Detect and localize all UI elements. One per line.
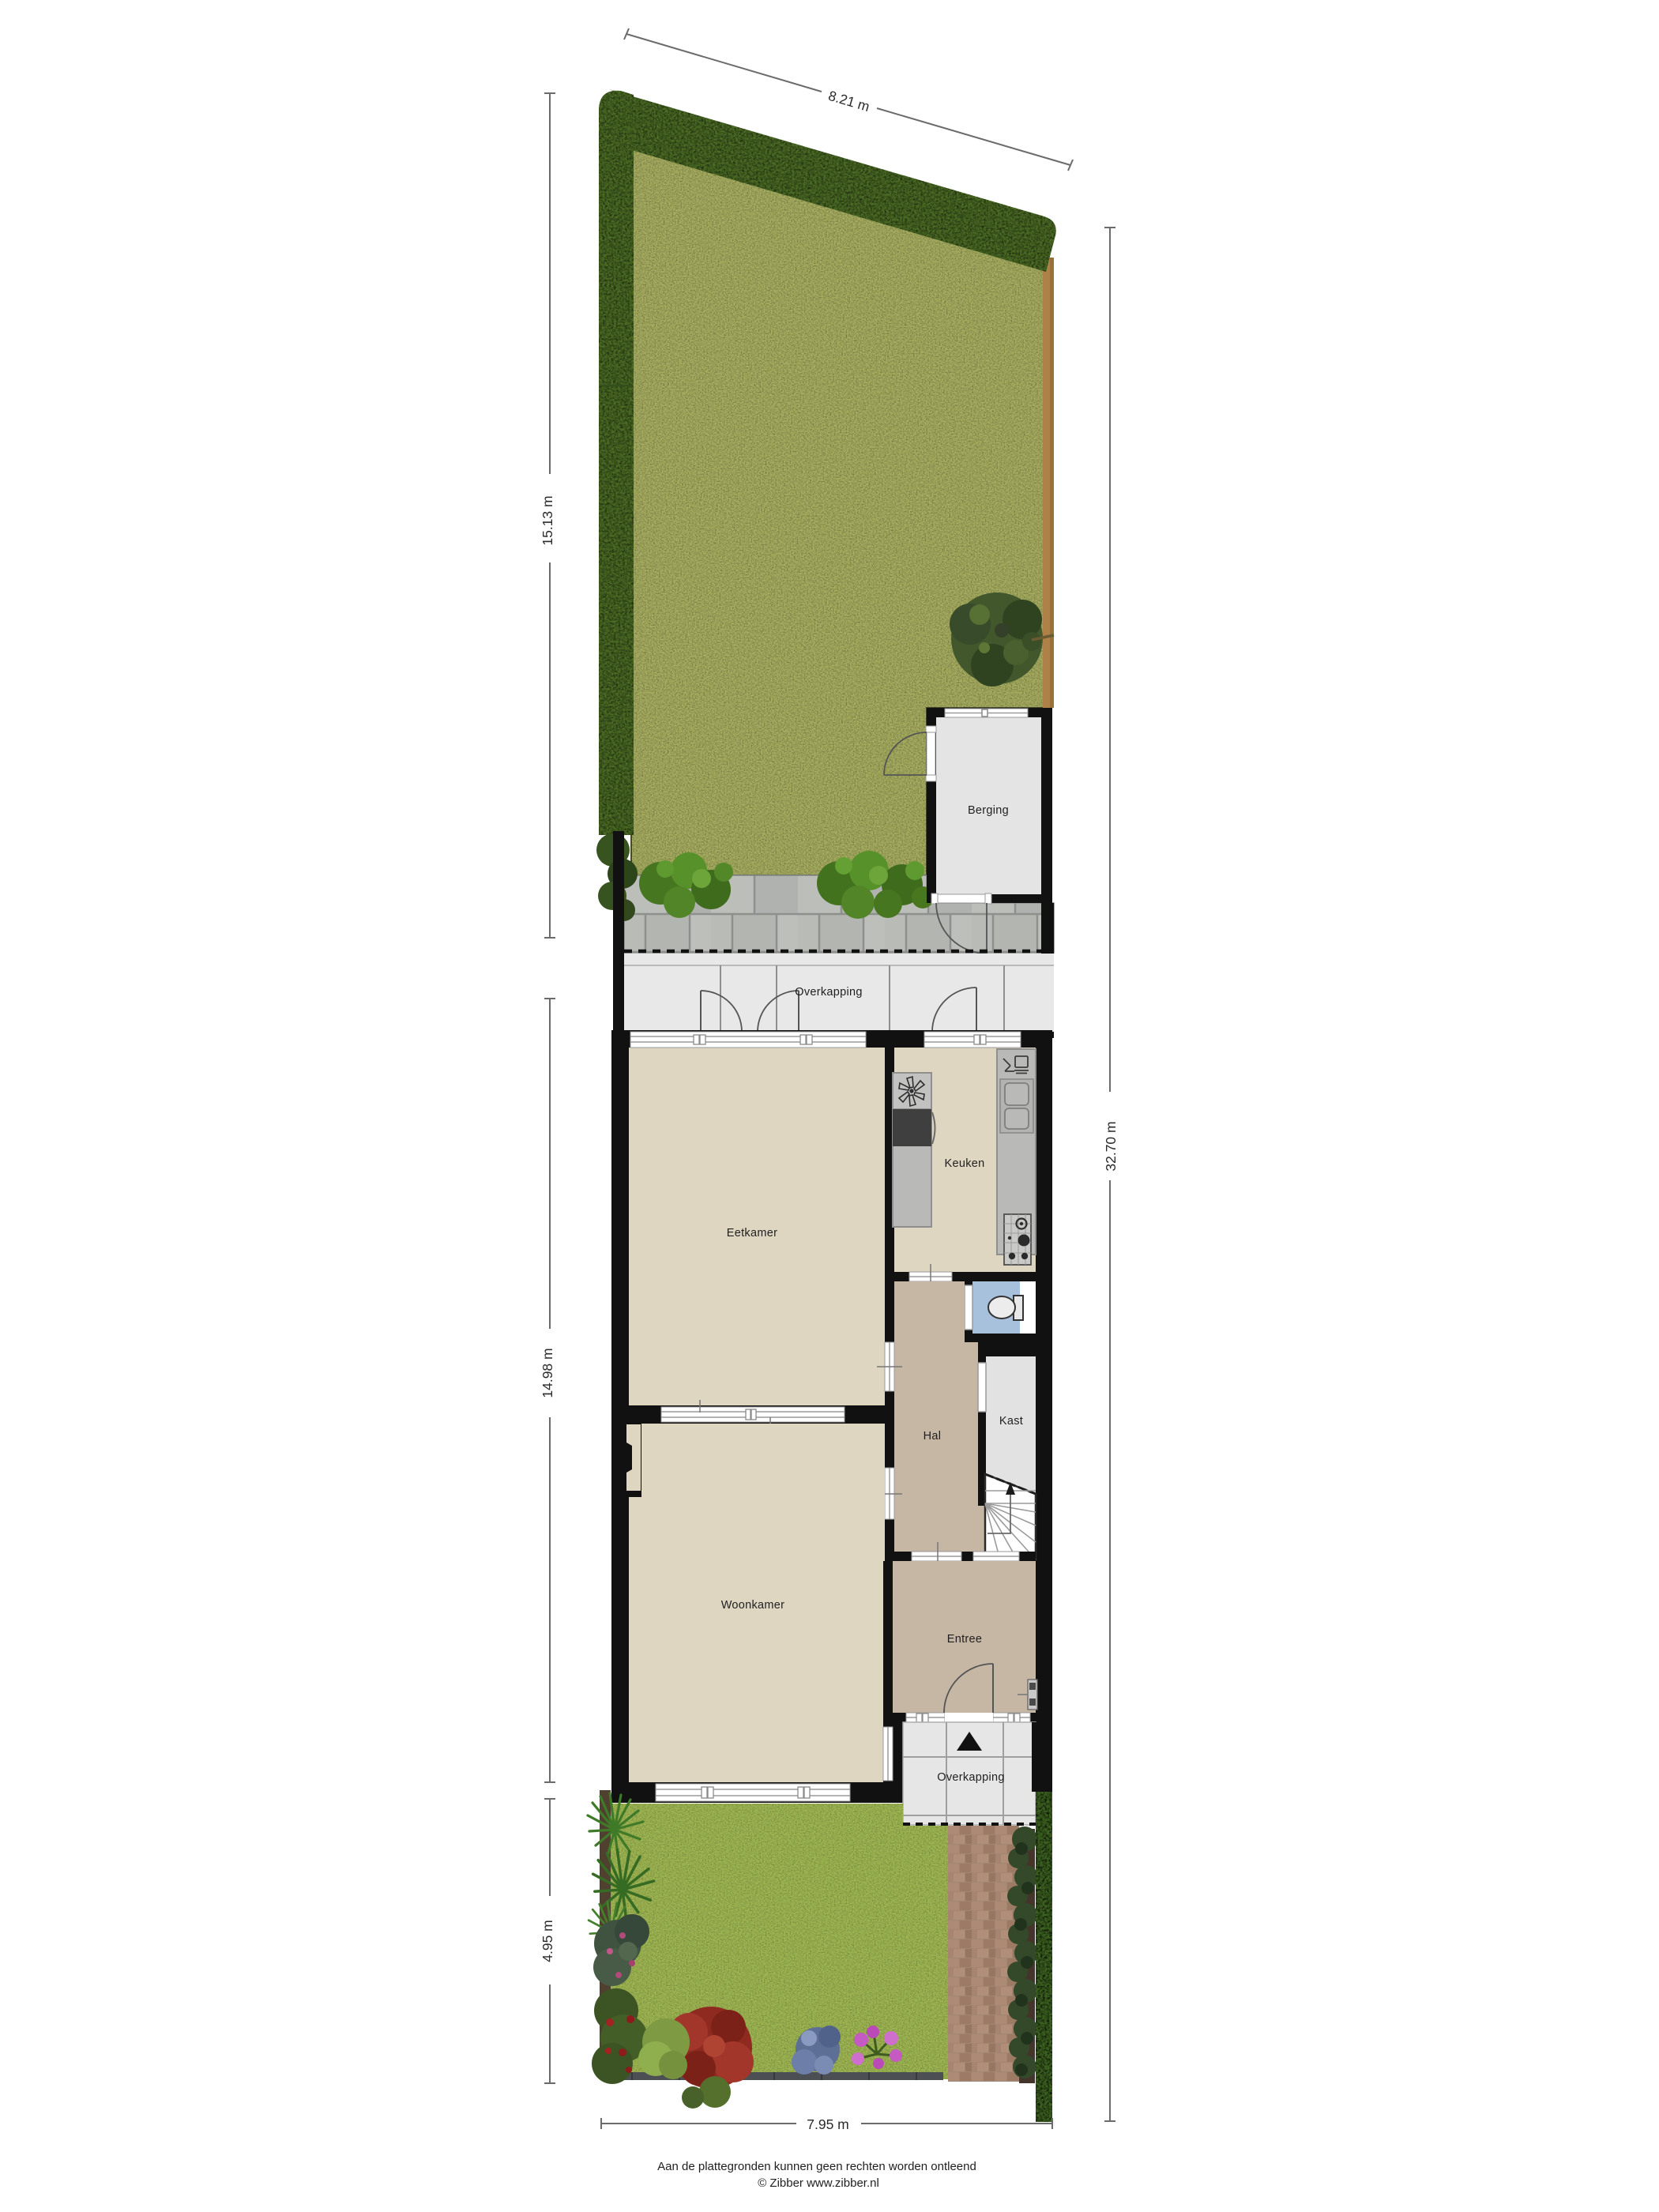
- svg-text:4.95 m: 4.95 m: [540, 1920, 555, 1962]
- svg-text:Aan de plattegronden kunnen ge: Aan de plattegronden kunnen geen rechten…: [657, 2160, 976, 2173]
- svg-text:Entree: Entree: [947, 1633, 983, 1646]
- svg-text:Overkapping: Overkapping: [937, 1771, 1005, 1784]
- svg-text:14.98 m: 14.98 m: [540, 1348, 555, 1398]
- svg-text:Berging: Berging: [968, 804, 1009, 817]
- svg-text:Eetkamer: Eetkamer: [727, 1227, 777, 1240]
- svg-text:7.95 m: 7.95 m: [807, 2116, 849, 2132]
- svg-text:Keuken: Keuken: [945, 1157, 985, 1170]
- svg-text:Kast: Kast: [999, 1415, 1023, 1428]
- svg-text:Woonkamer: Woonkamer: [721, 1599, 785, 1612]
- svg-text:© Zibber www.zibber.nl: © Zibber www.zibber.nl: [758, 2176, 879, 2190]
- svg-text:15.13 m: 15.13 m: [540, 495, 555, 545]
- svg-text:Overkapping: Overkapping: [795, 986, 863, 999]
- svg-text:Hal: Hal: [924, 1430, 942, 1443]
- svg-text:32.70 m: 32.70 m: [1103, 1121, 1119, 1171]
